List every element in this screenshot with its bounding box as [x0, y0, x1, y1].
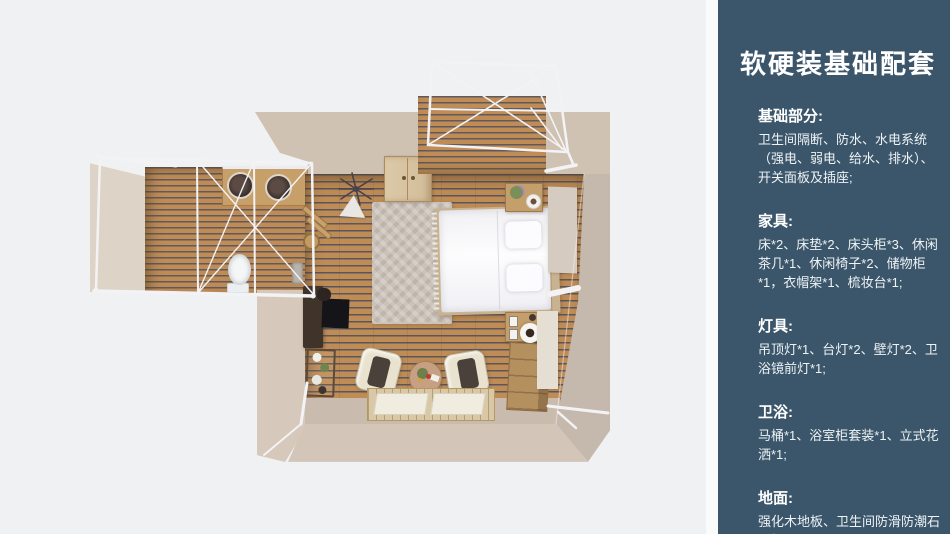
- section-heading: 灯具:: [758, 315, 942, 336]
- teepee-decor: [339, 194, 366, 218]
- table-note: [430, 374, 440, 382]
- section-bathroom: 卫浴: 马桶*1、浴室柜套装*1、立式花洒*1;: [758, 401, 942, 464]
- sidebar-accent-strip: [706, 0, 718, 534]
- bedroom-wall-bottom: [285, 424, 590, 463]
- nightstand-top: [505, 183, 543, 212]
- wardrobe-handle: [402, 176, 406, 180]
- section-heading: 地面:: [758, 487, 942, 508]
- plant-stand: [305, 349, 336, 398]
- desk-monitor: [322, 299, 350, 329]
- bathroom-wall: [90, 152, 148, 292]
- info-sidebar: 软硬装基础配套 基础部分: 卫生间隔断、防水、水电系统（强电、弱电、给水、排水）…: [718, 0, 950, 534]
- deck-mat-right: [430, 393, 485, 415]
- flower-yellow: [418, 378, 422, 382]
- plant-green: [320, 363, 329, 372]
- section-flooring: 地面: 强化木地板、卫生间防滑防潮石塑板;: [758, 487, 942, 534]
- floorplan-render: [0, 0, 708, 534]
- section-furniture: 家具: 床*2、床垫*2、床头柜*3、休闲茶几*1、休闲椅子*2、储物柜*1，衣…: [758, 210, 942, 292]
- section-heading: 卫浴:: [758, 401, 942, 422]
- decor-knob: [529, 314, 536, 321]
- table-lamp-top: [526, 194, 541, 209]
- pillow: [505, 221, 542, 249]
- storage-basket: [303, 233, 320, 250]
- desk-chair: [317, 288, 331, 301]
- sink-right: [265, 174, 292, 201]
- nightstand-bottom: [505, 312, 541, 342]
- section-heading: 基础部分:: [758, 105, 942, 126]
- sidebar-title: 软硬装基础配套: [740, 44, 940, 81]
- pot-white: [312, 375, 322, 385]
- section-body: 卫生间隔断、防水、水电系统（强电、弱电、给水、排水）、开关面板及插座;: [758, 130, 942, 187]
- photo-frame: [509, 316, 518, 327]
- package-sections: 基础部分: 卫生间隔断、防水、水电系统（强电、弱电、给水、排水）、开关面板及插座…: [740, 105, 940, 534]
- door-panel-lower: [537, 311, 558, 389]
- section-heading: 家具:: [758, 210, 942, 231]
- entry-deck: [367, 388, 495, 421]
- chair-cushion: [457, 357, 480, 390]
- chair-cushion: [367, 355, 392, 388]
- wardrobe-handle: [411, 176, 415, 180]
- section-basics: 基础部分: 卫生间隔断、防水、水电系统（强电、弱电、给水、排水）、开关面板及插座…: [758, 105, 942, 187]
- slide: 软硬装基础配套 基础部分: 卫生间隔断、防水、水电系统（强电、弱电、给水、排水）…: [0, 0, 950, 534]
- section-body: 强化木地板、卫生间防滑防潮石塑板;: [758, 512, 942, 534]
- bed: [435, 205, 561, 315]
- deck-mat-left: [373, 393, 428, 415]
- section-body: 床*2、床垫*2、床头柜*3、休闲茶几*1、休闲椅子*2、储物柜*1，衣帽架*1…: [758, 235, 942, 292]
- door-panel-upper: [548, 186, 577, 273]
- sink-left: [227, 172, 254, 199]
- pot-dark: [318, 386, 326, 394]
- section-lighting: 灯具: 吊顶灯*1、台灯*2、壁灯*2、卫浴镜前灯*1;: [758, 315, 942, 378]
- balcony-deck: [418, 96, 546, 174]
- wardrobe-seam: [407, 158, 408, 200]
- flower-white: [312, 353, 321, 362]
- photo-frame: [509, 329, 518, 340]
- plant-decor: [510, 186, 523, 199]
- section-body: 马桶*1、浴室柜套装*1、立式花洒*1;: [758, 426, 942, 464]
- toilet-bowl: [228, 254, 251, 285]
- section-body: 吊顶灯*1、台灯*2、壁灯*2、卫浴镜前灯*1;: [758, 340, 942, 378]
- shower-fixture: [292, 262, 303, 284]
- pillow: [506, 264, 543, 292]
